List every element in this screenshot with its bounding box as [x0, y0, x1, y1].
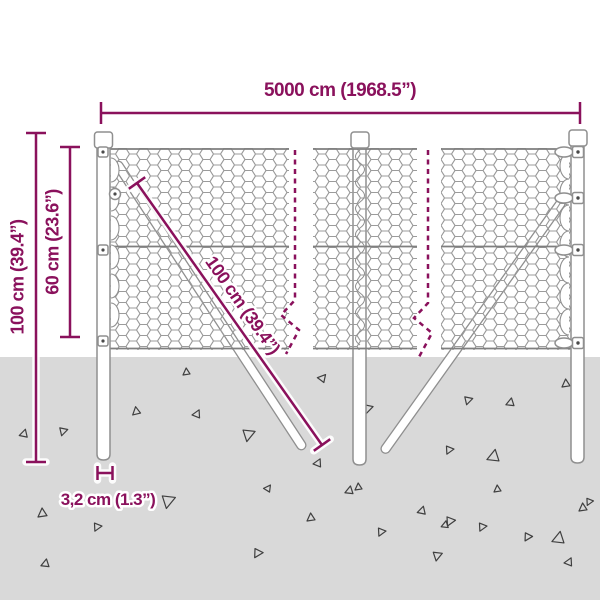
post-cap-middle	[351, 132, 369, 148]
clamp	[555, 193, 584, 204]
ground	[0, 357, 600, 600]
fence-dimension-diagram: 5000 cm (1968.5”) 100 cm (39.4”) 60 cm (…	[0, 0, 600, 600]
post-cap-right	[569, 130, 587, 146]
mesh-panels	[108, 148, 578, 350]
label-mesh-height: 60 cm (23.6”)	[42, 189, 62, 295]
label-post-diameter: 3,2 cm (1.3”)	[61, 490, 156, 509]
label-total-height: 100 cm (39.4”)	[7, 219, 27, 335]
mesh-panel-middle	[313, 148, 417, 350]
post-cap-left	[95, 132, 113, 148]
clamp	[555, 338, 584, 349]
label-total-width: 5000 cm (1968.5”)	[264, 80, 416, 101]
clamp	[555, 147, 584, 158]
clamp	[555, 245, 584, 256]
diagram-canvas: 5000 cm (1968.5”) 100 cm (39.4”) 60 cm (…	[0, 0, 600, 600]
